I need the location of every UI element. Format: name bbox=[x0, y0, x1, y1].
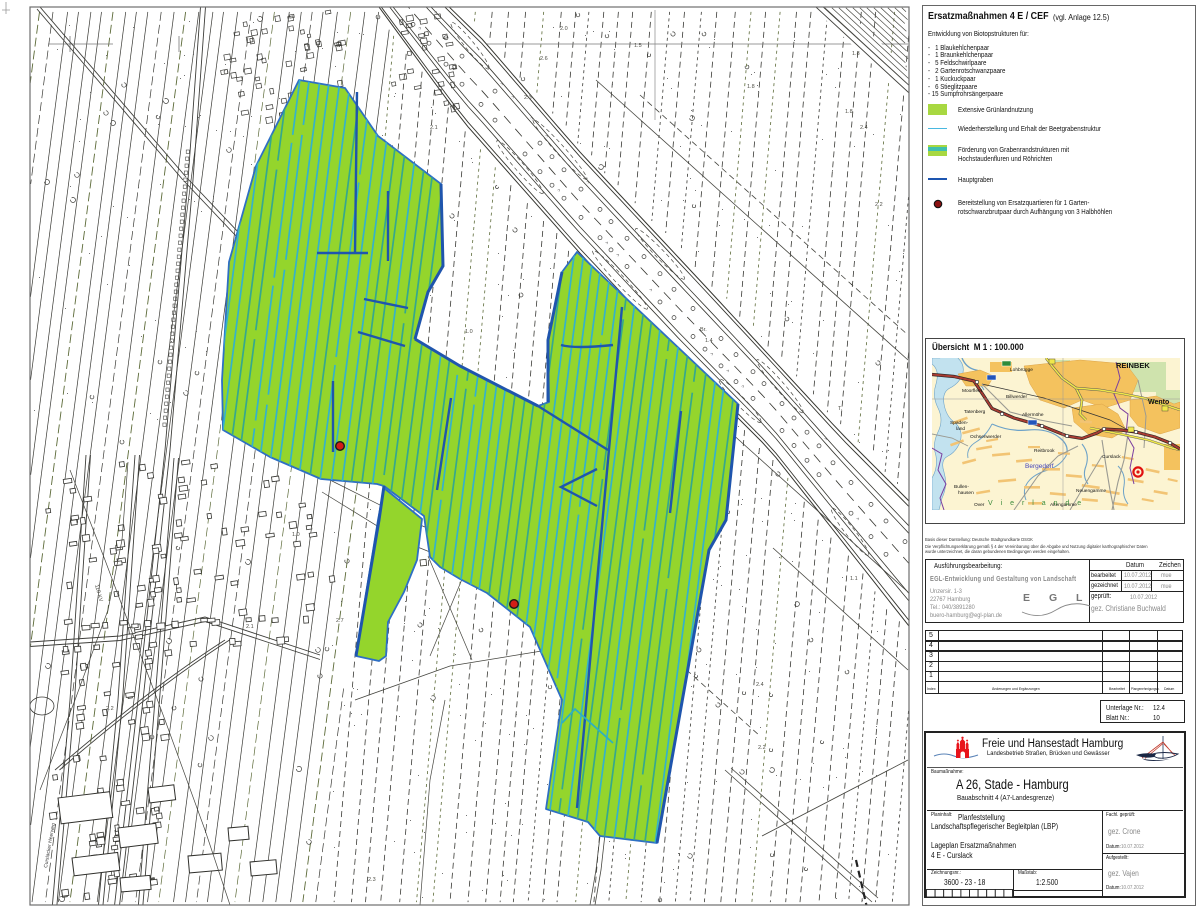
svg-text:1.8: 1.8 bbox=[845, 109, 853, 115]
svg-text:2.6: 2.6 bbox=[540, 56, 548, 62]
svg-text:2.4: 2.4 bbox=[756, 682, 764, 688]
svg-text:2.1: 2.1 bbox=[246, 624, 254, 630]
svg-text:1.0: 1.0 bbox=[292, 532, 300, 538]
svg-text:REINBEK: REINBEK bbox=[1116, 361, 1150, 370]
svg-text:Allermöhe: Allermöhe bbox=[1022, 412, 1044, 418]
svg-text:T.: T. bbox=[838, 406, 843, 412]
svg-text:Spaden-: Spaden- bbox=[950, 420, 969, 426]
svg-text:Neuengamme: Neuengamme bbox=[1076, 488, 1106, 494]
svg-text:1.4: 1.4 bbox=[705, 338, 713, 344]
svg-text:1.8: 1.8 bbox=[747, 84, 755, 90]
svg-text:Curslack: Curslack bbox=[1102, 454, 1121, 460]
svg-text:2.7: 2.7 bbox=[336, 618, 344, 624]
svg-text:2.3: 2.3 bbox=[368, 877, 376, 883]
svg-text:land: land bbox=[956, 426, 965, 432]
svg-text:Billwerder: Billwerder bbox=[1006, 394, 1027, 400]
svg-text:1.0: 1.0 bbox=[465, 329, 473, 335]
svg-text:2.3: 2.3 bbox=[524, 95, 532, 101]
svg-text:Ochsenwerder: Ochsenwerder bbox=[970, 434, 1002, 440]
svg-text:2.4: 2.4 bbox=[860, 125, 868, 131]
svg-text:2.2: 2.2 bbox=[758, 745, 766, 751]
svg-text:Br.: Br. bbox=[700, 327, 707, 333]
svg-text:2.1: 2.1 bbox=[430, 125, 438, 131]
svg-text:2.0: 2.0 bbox=[560, 26, 568, 32]
svg-text:1.8: 1.8 bbox=[852, 51, 860, 57]
svg-text:hausen: hausen bbox=[958, 490, 974, 496]
svg-text:Wento: Wento bbox=[1148, 399, 1169, 406]
svg-text:Lohbrügge: Lohbrügge bbox=[1010, 367, 1033, 373]
svg-text:Moorfleet: Moorfleet bbox=[962, 388, 983, 394]
svg-text:V i e r l a n d e: V i e r l a n d e bbox=[988, 500, 1084, 507]
svg-text:Bergedorf: Bergedorf bbox=[1025, 463, 1054, 470]
svg-text:Bullen-: Bullen- bbox=[954, 484, 969, 490]
svg-text:Reitbrook: Reitbrook bbox=[1034, 448, 1055, 454]
svg-text:Tatenberg: Tatenberg bbox=[964, 409, 986, 415]
svg-text:2.2: 2.2 bbox=[875, 202, 883, 208]
svg-text:2.2: 2.2 bbox=[106, 706, 114, 712]
svg-text:1.5: 1.5 bbox=[634, 43, 642, 49]
svg-text:1.1: 1.1 bbox=[850, 576, 858, 582]
svg-text:Over: Over bbox=[974, 502, 985, 508]
